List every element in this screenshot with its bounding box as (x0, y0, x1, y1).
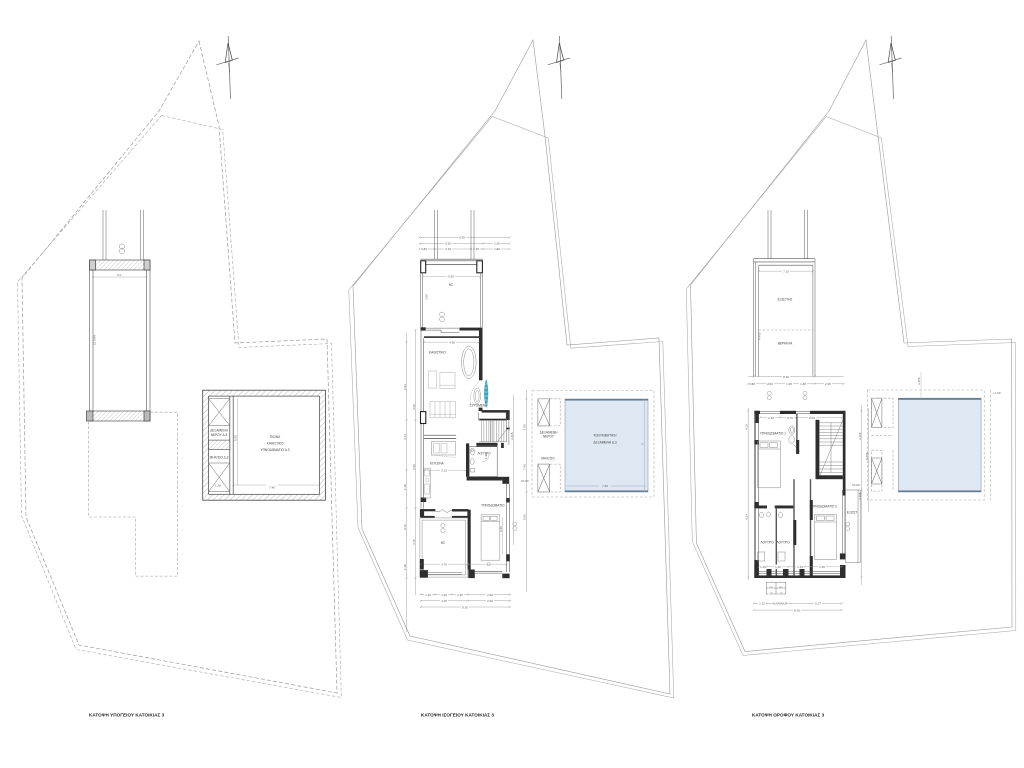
svg-text:4.465: 4.465 (858, 492, 862, 500)
svg-text:ΔΕΞΑΜΕΝΗ Δ.3: ΔΕΞΑΜΕΝΗ Δ.3 (593, 441, 617, 445)
svg-text:ΥΠΝΟΔΩΜΑΤΙΟ: ΥΠΝΟΔΩΜΑΤΙΟ (481, 504, 505, 508)
svg-text:2.10: 2.10 (767, 382, 773, 386)
svg-text:ΚΑΤΟΨΗ ΙΣΟΓΕΙΟΥ ΚΑΤΟΙΚΙΑΣ 3: ΚΑΤΟΨΗ ΙΣΟΓΕΙΟΥ ΚΑΤΟΙΚΙΑΣ 3 (421, 712, 494, 717)
svg-text:5.90: 5.90 (448, 275, 454, 279)
svg-text:ΚΟΥΖΙΝΑ: ΚΟΥΖΙΝΑ (430, 462, 445, 466)
svg-text:4.14: 4.14 (745, 424, 749, 430)
svg-text:0.72: 0.72 (403, 524, 407, 530)
svg-text:ΚΟΛΥΜΒΗΤΙΚΗ: ΚΟΛΥΜΒΗΤΙΚΗ (594, 434, 618, 438)
svg-text:1.45: 1.45 (441, 593, 447, 597)
svg-text:ΚΑΘΙΣΤΙΚΟ: ΚΑΘΙΣΤΙΚΟ (267, 442, 284, 446)
svg-text:5.60: 5.60 (234, 435, 238, 441)
svg-text:ΕΞΩΣΤΗΣ: ΕΞΩΣΤΗΣ (778, 298, 793, 302)
svg-text:ΝΕΡΟΥ: ΝΕΡΟΥ (543, 435, 555, 439)
svg-text:28: 28 (779, 592, 783, 596)
svg-text:1.50: 1.50 (819, 565, 825, 569)
svg-text:ΥΠΝΟΔΩΜΑΤΙΟ 2: ΥΠΝΟΔΩΜΑΤΙΟ 2 (811, 505, 837, 509)
svg-text:ΜΗΧ/ΣΙΟ Δ.3: ΜΗΧ/ΣΙΟ Δ.3 (210, 456, 229, 460)
svg-text:1.90: 1.90 (484, 453, 488, 459)
svg-text:4.14: 4.14 (403, 434, 407, 440)
svg-text:8.30: 8.30 (462, 605, 468, 609)
svg-text:2.60: 2.60 (494, 242, 500, 246)
svg-text:1.00: 1.00 (523, 424, 527, 430)
svg-text:4.25: 4.25 (441, 599, 447, 603)
svg-text:ΑΝ: ΑΝ (769, 586, 773, 590)
svg-text:3.465: 3.465 (917, 377, 921, 385)
svg-text:ΚΛΙΜΑΚΑ: ΚΛΙΜΑΚΑ (773, 602, 786, 606)
svg-text:0.70: 0.70 (787, 416, 793, 420)
svg-text:1.40: 1.40 (403, 484, 407, 490)
svg-text:ΚΑΘΙΣΤΙΚΟ: ΚΑΘΙΣΤΙΚΟ (429, 351, 446, 355)
svg-text:0.60: 0.60 (421, 247, 427, 251)
svg-text:+1.00: +1.00 (993, 391, 1001, 395)
svg-text:3.465: 3.465 (858, 432, 862, 440)
svg-text:4.95: 4.95 (449, 341, 455, 345)
svg-text:5.27: 5.27 (815, 602, 821, 606)
svg-text:10.00%: 10.00% (93, 334, 97, 345)
svg-text:18: 18 (769, 592, 773, 596)
svg-text:ΥΠΝΟΔΩΜΑΤΙΟ Δ.3: ΥΠΝΟΔΩΜΑΤΙΟ Δ.3 (260, 448, 289, 452)
svg-text:3.10: 3.10 (441, 469, 447, 473)
svg-text:1.30: 1.30 (494, 247, 500, 251)
svg-text:7.40: 7.40 (602, 484, 608, 488)
svg-text:4.14: 4.14 (745, 514, 749, 520)
svg-text:4.70: 4.70 (412, 539, 416, 545)
svg-text:ΜΗΧ/ΣΙΟ: ΜΗΧ/ΣΙΟ (541, 457, 555, 461)
svg-text:1.32: 1.32 (759, 602, 765, 606)
svg-text:2.60: 2.60 (412, 464, 416, 470)
svg-text:2.18: 2.18 (768, 416, 774, 420)
svg-text:±0.00: ±0.00 (521, 479, 529, 483)
svg-text:8.30: 8.30 (783, 375, 789, 379)
svg-text:ΒΑ: ΒΑ (779, 586, 783, 590)
svg-text:ΗΣ: ΗΣ (441, 541, 445, 545)
svg-text:1.28: 1.28 (215, 484, 221, 488)
svg-text:2.35: 2.35 (825, 382, 831, 386)
svg-text:8.465: 8.465 (865, 452, 869, 460)
svg-text:3.60: 3.60 (412, 404, 416, 410)
svg-text:1.40: 1.40 (775, 565, 781, 569)
svg-text:8.30: 8.30 (794, 609, 800, 613)
svg-text:1.15: 1.15 (797, 565, 803, 569)
svg-text:7.10: 7.10 (783, 270, 789, 274)
svg-text:4.465: 4.465 (758, 332, 762, 340)
svg-text:ΛΟΥΤΡΟ: ΛΟΥΤΡΟ (776, 541, 790, 545)
svg-text:ΒΕΡΑΝΤΑ: ΒΕΡΑΝΤΑ (778, 342, 793, 346)
svg-text:7.40: 7.40 (269, 485, 275, 489)
svg-text:1.35: 1.35 (457, 593, 463, 597)
svg-text:0.50: 0.50 (523, 514, 527, 520)
svg-text:1.32: 1.32 (425, 593, 431, 597)
svg-text:±0.00: ±0.00 (852, 483, 860, 487)
svg-text:2.93: 2.93 (403, 384, 407, 390)
svg-text:2.60: 2.60 (499, 526, 503, 532)
svg-text:ΚΑΤΟΨΗ ΥΠΟΓΕΙΟΥ ΚΑΤΟΙΚΙΑΣ 3: ΚΑΤΟΨΗ ΥΠΟΓΕΙΟΥ ΚΑΤΟΙΚΙΑΣ 3 (89, 712, 165, 717)
svg-text:5.90: 5.90 (445, 242, 451, 246)
svg-text:ΛΟΥΤΡΟ: ΛΟΥΤΡΟ (760, 541, 774, 545)
svg-text:2.90: 2.90 (487, 599, 493, 603)
svg-text:1.35: 1.35 (786, 382, 792, 386)
svg-text:4.70: 4.70 (441, 563, 447, 567)
svg-text:ΗΣ: ΗΣ (449, 283, 453, 287)
svg-text:3.60: 3.60 (425, 294, 429, 300)
svg-text:2.90: 2.90 (487, 593, 493, 597)
svg-text:ΝΕΡΟΥ Δ.3: ΝΕΡΟΥ Δ.3 (211, 433, 228, 437)
svg-text:3.465: 3.465 (510, 432, 514, 440)
svg-text:ΥΠΝΟΔΩΜΑΤΙΟ 1: ΥΠΝΟΔΩΜΑΤΙΟ 1 (760, 432, 786, 436)
svg-text:ΚΑΤΟΨΗ ΟΡΟΦΟΥ ΚΑΤΟΙΚΙΑΣ 3: ΚΑΤΟΨΗ ΟΡΟΦΟΥ ΚΑΤΟΙΚΙΑΣ 3 (752, 712, 825, 717)
svg-text:7.40: 7.40 (523, 464, 527, 470)
svg-text:1.15: 1.15 (760, 565, 766, 569)
svg-text:3.0: 3.0 (117, 273, 122, 277)
svg-text:2.64: 2.64 (809, 416, 815, 420)
svg-text:3.10: 3.10 (445, 247, 451, 251)
svg-text:ΠΙΣΙΝΑ: ΠΙΣΙΝΑ (270, 435, 281, 439)
svg-text:6.95: 6.95 (459, 236, 465, 240)
svg-text:1.45: 1.45 (403, 564, 407, 570)
svg-text:ΕΞΩΣΤ: ΕΞΩΣΤ (847, 511, 858, 515)
